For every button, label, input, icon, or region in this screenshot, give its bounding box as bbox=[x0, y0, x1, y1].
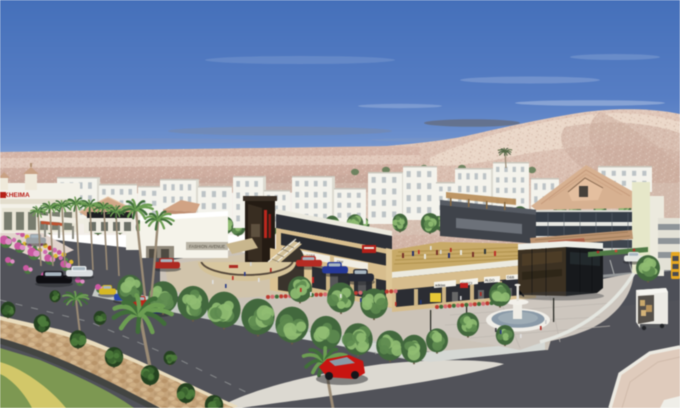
svg-text:ALDO: ALDO bbox=[485, 279, 495, 283]
svg-text:adidas: adidas bbox=[435, 284, 446, 288]
svg-text:KHEIMA: KHEIMA bbox=[4, 192, 30, 199]
svg-text:FASHION AVENUE: FASHION AVENUE bbox=[189, 244, 225, 249]
svg-text:D&B: D&B bbox=[507, 276, 515, 280]
